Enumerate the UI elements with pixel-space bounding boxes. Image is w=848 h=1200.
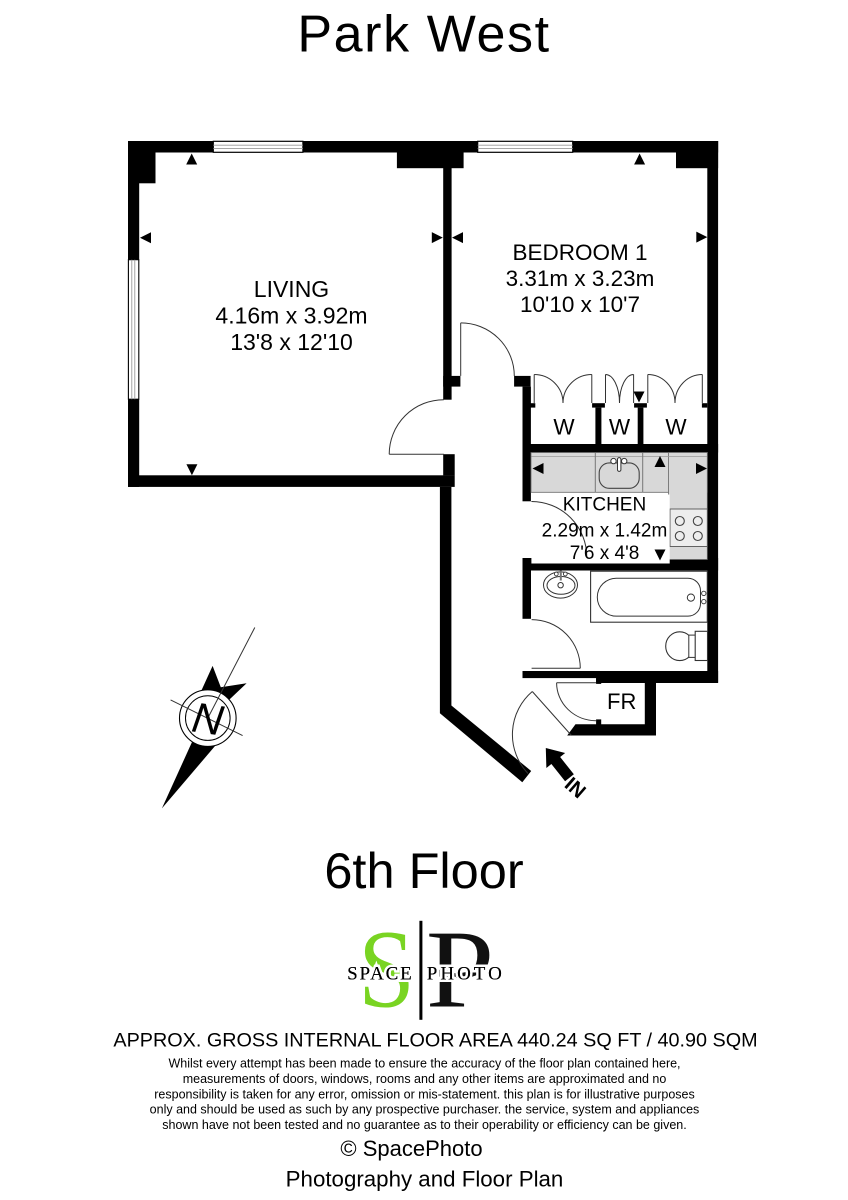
svg-text:13'8 x 12'10: 13'8 x 12'10 xyxy=(230,329,353,355)
svg-text:Park West: Park West xyxy=(297,6,550,64)
svg-text:FR: FR xyxy=(607,689,636,714)
svg-text:3.31m x 3.23m: 3.31m x 3.23m xyxy=(506,266,655,291)
svg-text:LIVING: LIVING xyxy=(254,276,329,302)
svg-text:W: W xyxy=(665,415,687,440)
svg-text:SPACE: SPACE xyxy=(347,964,413,985)
svg-text:only and should be used as suc: only and should be used as such by any p… xyxy=(150,1103,700,1117)
svg-text:BEDROOM 1: BEDROOM 1 xyxy=(512,240,647,265)
svg-text:6th Floor: 6th Floor xyxy=(324,842,523,899)
svg-text:Whilst every attempt has been: Whilst every attempt has been made to en… xyxy=(168,1057,680,1071)
svg-text:7'6 x 4'8: 7'6 x 4'8 xyxy=(570,543,640,564)
svg-text:shown have not been tested and: shown have not been tested and no guaran… xyxy=(162,1118,686,1132)
svg-text:measurements of doors, windows: measurements of doors, windows, rooms an… xyxy=(183,1072,667,1086)
svg-text:2.29m x 1.42m: 2.29m x 1.42m xyxy=(542,521,668,542)
svg-text:APPROX. GROSS INTERNAL FLOOR A: APPROX. GROSS INTERNAL FLOOR AREA 440.24… xyxy=(113,1030,757,1052)
svg-text:W: W xyxy=(609,415,631,440)
svg-text:© SpacePhoto: © SpacePhoto xyxy=(340,1136,482,1161)
svg-text:4.16m x 3.92m: 4.16m x 3.92m xyxy=(215,302,367,328)
svg-text:responsibility is taken for an: responsibility is taken for any error, o… xyxy=(154,1087,695,1101)
svg-text:10'10 x 10'7: 10'10 x 10'7 xyxy=(520,292,640,317)
svg-text:PHOTO: PHOTO xyxy=(427,964,505,985)
svg-text:Photography and Floor Plan: Photography and Floor Plan xyxy=(286,1167,564,1192)
svg-text:KITCHEN: KITCHEN xyxy=(563,495,646,516)
svg-text:W: W xyxy=(553,415,575,440)
